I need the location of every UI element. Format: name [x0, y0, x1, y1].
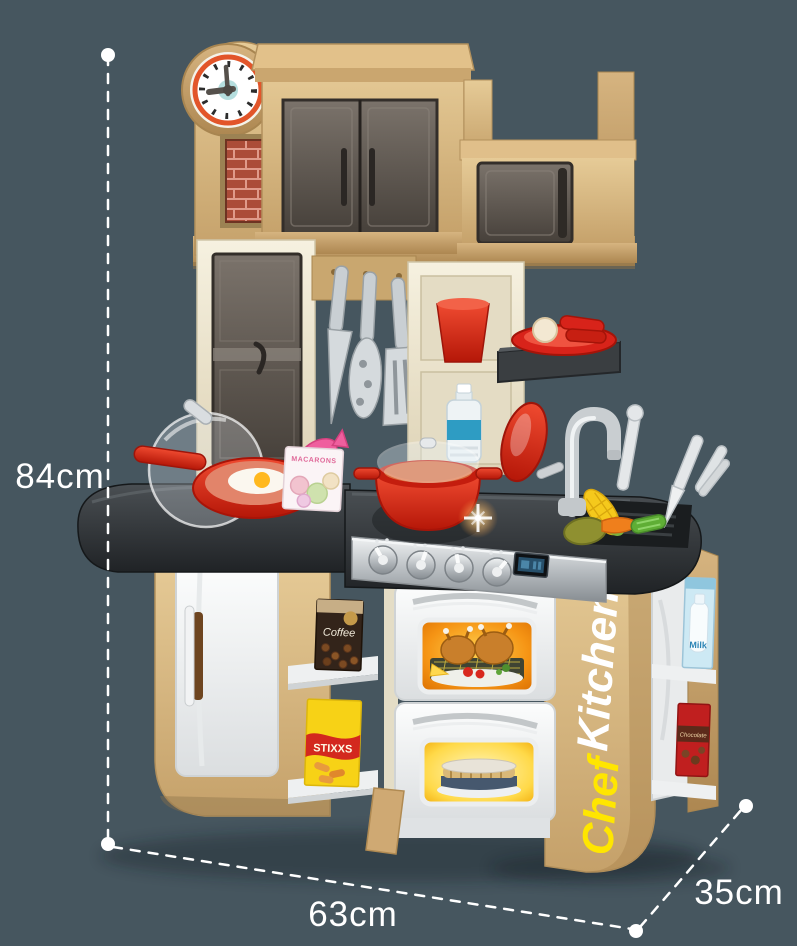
product-photo-stage: Chef Kitchen Milk Chocolate [0, 0, 797, 946]
pot-lid-knob [420, 438, 436, 448]
upper-cabinet-crown [252, 44, 474, 70]
coffee-box: Coffee [315, 599, 363, 671]
toy-kitchen-illustration: Chef Kitchen Milk Chocolate [0, 0, 797, 946]
dimension-height-label: 84cm [15, 457, 105, 496]
pie-art [437, 759, 521, 798]
upper-cabinet [252, 44, 474, 254]
microwave-handle [558, 168, 567, 238]
dimension-width-label: 63cm [308, 895, 398, 934]
oven-window-chicken [420, 620, 534, 692]
red-cup [437, 298, 489, 362]
pot-handle-left [354, 468, 380, 479]
milk-box-label: Milk [689, 640, 708, 651]
macarons-box: MACARONS [282, 447, 343, 512]
faucet-lever [536, 461, 565, 480]
oven-lower-drawer [395, 703, 555, 821]
dimension-dot [101, 48, 115, 62]
pot-handle-right [476, 468, 502, 479]
chocolate-box-label: Chocolate [680, 733, 708, 740]
oven-stack [384, 582, 555, 838]
oven-kick-panel [398, 818, 550, 838]
microwave-hutch [457, 72, 637, 263]
dimension-depth-label: 35cm [694, 873, 784, 912]
dimension-dot [629, 924, 643, 938]
coffee-box-label: Coffee [323, 626, 356, 639]
cabinet-door-handle-left [341, 148, 347, 206]
oven-window-pie [422, 740, 536, 804]
milk-box: Milk [682, 578, 715, 669]
sparkle-glow [458, 498, 498, 538]
snack-box-label: STIXXS [313, 742, 353, 755]
door-handle [185, 606, 194, 706]
cabinet-door [176, 562, 278, 776]
egg-yolk [254, 472, 270, 488]
microwave-door [478, 163, 572, 243]
oven-upper-drawer [395, 584, 555, 700]
onion-toy [533, 318, 557, 342]
food-plate [512, 315, 616, 355]
cabinet-doors [283, 100, 437, 234]
sink-area [562, 404, 736, 548]
dimension-dot [101, 837, 115, 851]
cabinet-door-handle-right [369, 148, 375, 206]
stove-display [513, 553, 549, 578]
dimension-dot [739, 799, 753, 813]
chocolate-box: Chocolate [676, 703, 710, 776]
snack-box: STIXXS [304, 699, 361, 787]
brand-text-chef: Chef [573, 751, 629, 856]
